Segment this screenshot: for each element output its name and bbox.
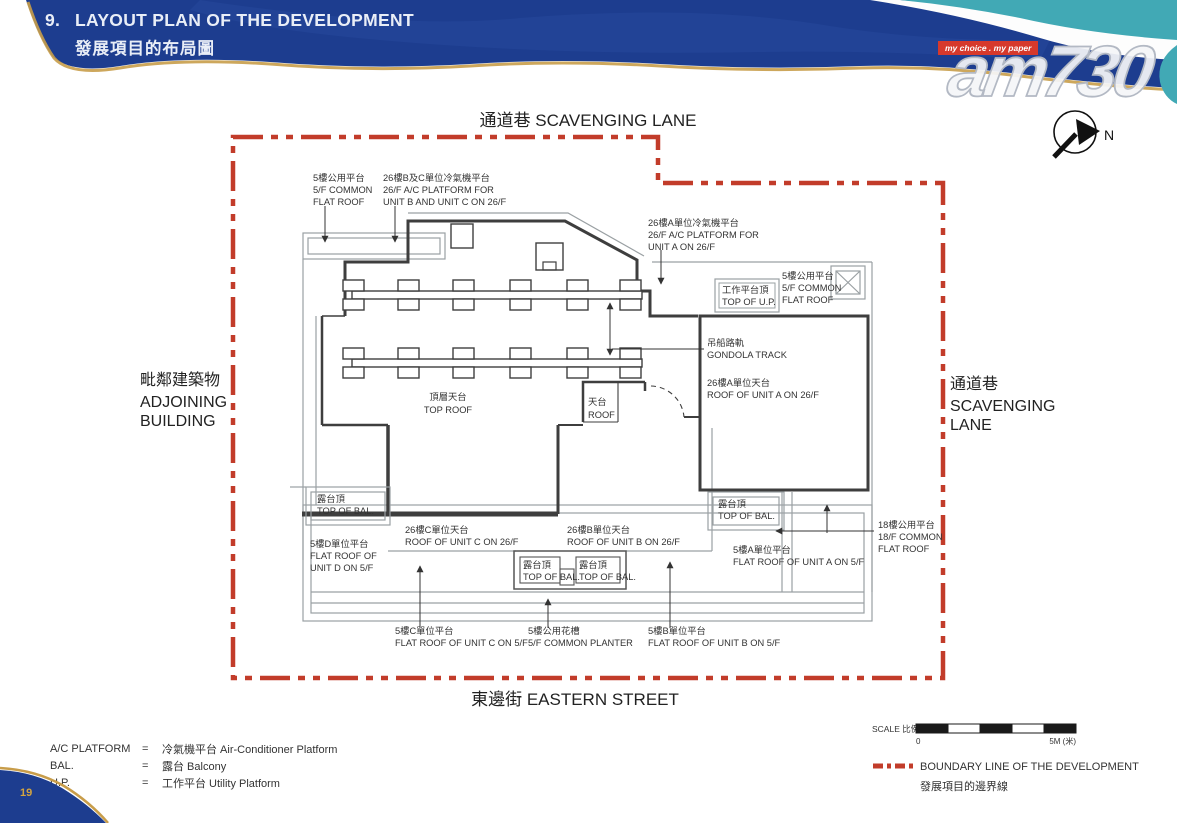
svg-text:FLAT ROOF OF UNIT B ON 5/F: FLAT ROOF OF UNIT B ON 5/F — [648, 638, 781, 648]
label-top-of-bal-right: 露台頂 TOP OF BAL. — [718, 498, 775, 521]
svg-text:5樓公用花槽: 5樓公用花槽 — [528, 625, 580, 636]
corner-navy-shape — [0, 770, 106, 823]
scale-bar — [916, 724, 1076, 733]
label-top-of-bal-bottom-1: 露台頂 TOP OF BAL. — [523, 559, 580, 582]
svg-text:ROOF OF UNIT B ON 26/F: ROOF OF UNIT B ON 26/F — [567, 537, 680, 547]
scavenging-lane-right-label: 通道巷 SCAVENGING LANE — [950, 375, 1056, 434]
gondola-track-rails — [343, 280, 642, 378]
label-ac-platform-unit-bc: 26樓B及C單位冷氣機平台 26/F A/C PLATFORM FOR UNIT… — [383, 172, 506, 207]
label-5f-common-flat-roof-right: 5樓公用平台 5/F COMMON FLAT ROOF — [782, 270, 841, 305]
svg-text:5/F COMMON PLANTER: 5/F COMMON PLANTER — [528, 638, 633, 648]
svg-text:26/F A/C PLATFORM FOR: 26/F A/C PLATFORM FOR — [648, 230, 759, 240]
svg-text:UNIT D ON 5/F: UNIT D ON 5/F — [310, 563, 374, 573]
street-label-top: 通道巷 SCAVENGING LANE — [480, 111, 697, 130]
svg-text:5/F COMMON: 5/F COMMON — [313, 185, 372, 195]
label-roof-small: 天台 ROOF — [588, 396, 615, 420]
svg-text:UNIT B AND UNIT C ON 26/F: UNIT B AND UNIT C ON 26/F — [383, 197, 506, 207]
svg-text:TOP OF BAL.: TOP OF BAL. — [718, 511, 775, 521]
svg-text:TOP OF BAL.: TOP OF BAL. — [317, 506, 374, 516]
svg-text:FLAT ROOF: FLAT ROOF — [782, 295, 834, 305]
svg-text:26樓B及C單位冷氣機平台: 26樓B及C單位冷氣機平台 — [383, 172, 490, 183]
label-roof-of-unit-b: 26樓B單位天台 ROOF OF UNIT B ON 26/F — [567, 524, 680, 547]
svg-text:ROOF: ROOF — [588, 410, 615, 420]
svg-text:5樓C單位平台: 5樓C單位平台 — [395, 625, 453, 636]
svg-text:26樓A單位天台: 26樓A單位天台 — [707, 377, 770, 388]
svg-text:SCAVENGING: SCAVENGING — [950, 398, 1056, 415]
svg-text:5樓公用平台: 5樓公用平台 — [313, 172, 365, 183]
layout-plan: 通道巷 SCAVENGING LANE 東邊街 EASTERN STREET 毗… — [0, 0, 1177, 823]
svg-text:TOP OF BAL.: TOP OF BAL. — [523, 572, 580, 582]
label-top-of-bal-bottom-2: 露台頂 TOP OF BAL. — [579, 559, 636, 582]
label-roof-of-unit-c: 26樓C單位天台 ROOF OF UNIT C ON 26/F — [405, 524, 519, 547]
label-flat-roof-unit-c: 5樓C單位平台 FLAT ROOF OF UNIT C ON 5/F — [395, 625, 528, 648]
svg-text:18樓公用平台: 18樓公用平台 — [878, 519, 935, 530]
svg-text:毗鄰建築物: 毗鄰建築物 — [140, 371, 220, 389]
svg-text:露台頂: 露台頂 — [718, 498, 747, 509]
label-roof-of-unit-a: 26樓A單位天台 ROOF OF UNIT A ON 26/F — [707, 377, 819, 400]
svg-text:26樓B單位天台: 26樓B單位天台 — [567, 524, 630, 535]
svg-text:ADJOINING: ADJOINING — [140, 394, 227, 411]
svg-text:5樓公用平台: 5樓公用平台 — [782, 270, 834, 281]
title-chinese: 發展項目的布局圖 — [75, 35, 414, 59]
svg-text:TOP OF U.P.: TOP OF U.P. — [722, 297, 776, 307]
svg-text:26/F A/C PLATFORM FOR: 26/F A/C PLATFORM FOR — [383, 185, 494, 195]
boundary-legend-en: BOUNDARY LINE OF THE DEVELOPMENT — [920, 761, 1139, 773]
svg-text:吊船路軌: 吊船路軌 — [707, 337, 745, 348]
svg-text:FLAT ROOF: FLAT ROOF — [313, 197, 365, 207]
label-flat-roof-unit-a: 5樓A單位平台 FLAT ROOF OF UNIT A ON 5/F — [733, 544, 865, 567]
scale-and-boundary-legend: SCALE 比例 : 0 5M (米) BOUNDARY LINE OF THE… — [870, 718, 1170, 808]
svg-text:FLAT ROOF: FLAT ROOF — [878, 544, 930, 554]
scale-max: 5M (米) — [1049, 736, 1076, 746]
svg-text:TOP OF BAL.: TOP OF BAL. — [579, 572, 636, 582]
svg-text:頂層天台: 頂層天台 — [429, 391, 466, 402]
page-number: 19 — [20, 787, 32, 799]
label-top-roof: 頂層天台 TOP ROOF — [424, 391, 473, 415]
logo-brand-text: am730 — [943, 31, 1161, 111]
label-gondola-track: 吊船路軌 GONDOLA TRACK — [707, 337, 788, 360]
svg-text:18/F COMMON: 18/F COMMON — [878, 532, 943, 542]
svg-text:FLAT ROOF OF UNIT A ON 5/F: FLAT ROOF OF UNIT A ON 5/F — [733, 557, 865, 567]
svg-text:BUILDING: BUILDING — [140, 413, 216, 430]
am730-logo: am730 — [928, 24, 1168, 120]
svg-text:26樓A單位冷氣機平台: 26樓A單位冷氣機平台 — [648, 217, 739, 228]
adjoining-building-label: 毗鄰建築物 ADJOINING BUILDING — [140, 371, 227, 430]
label-top-of-up: 工作平台頂 TOP OF U.P. — [715, 279, 779, 312]
svg-text:ROOF OF UNIT C ON 26/F: ROOF OF UNIT C ON 26/F — [405, 537, 519, 547]
svg-text:LANE: LANE — [950, 417, 992, 434]
svg-text:5樓B單位平台: 5樓B單位平台 — [648, 625, 706, 636]
svg-text:5/F COMMON: 5/F COMMON — [782, 283, 841, 293]
svg-text:露台頂: 露台頂 — [317, 493, 346, 504]
svg-text:26樓C單位天台: 26樓C單位天台 — [405, 524, 469, 535]
svg-text:ROOF OF UNIT A ON 26/F: ROOF OF UNIT A ON 26/F — [707, 390, 819, 400]
svg-text:通道巷: 通道巷 — [950, 375, 998, 393]
page-title: 9. LAYOUT PLAN OF THE DEVELOPMENT 發展項目的布… — [45, 10, 414, 59]
svg-text:5樓D單位平台: 5樓D單位平台 — [310, 538, 368, 549]
section-number: 9. — [45, 10, 75, 31]
svg-text:GONDOLA TRACK: GONDOLA TRACK — [707, 350, 788, 360]
svg-text:露台頂: 露台頂 — [579, 559, 608, 570]
scale-zero: 0 — [916, 737, 921, 746]
svg-text:TOP ROOF: TOP ROOF — [424, 405, 473, 415]
svg-text:工作平台頂: 工作平台頂 — [722, 284, 769, 295]
svg-text:天台: 天台 — [588, 396, 607, 407]
svg-text:5樓A單位平台: 5樓A單位平台 — [733, 544, 791, 555]
label-5f-common-planter: 5樓公用花槽 5/F COMMON PLANTER — [528, 625, 633, 648]
legend-row-ac-platform: A/C PLATFORM = 冷氣機平台 Air-Conditioner Pla… — [50, 740, 337, 757]
title-english: LAYOUT PLAN OF THE DEVELOPMENT — [75, 10, 414, 31]
street-label-bottom: 東邊街 EASTERN STREET — [471, 690, 679, 709]
svg-text:FLAT ROOF OF UNIT C ON 5/F: FLAT ROOF OF UNIT C ON 5/F — [395, 638, 528, 648]
label-5f-common-flat-roof-left: 5樓公用平台 5/F COMMON FLAT ROOF — [313, 172, 372, 207]
svg-text:UNIT A ON 26/F: UNIT A ON 26/F — [648, 242, 715, 252]
svg-text:FLAT ROOF OF: FLAT ROOF OF — [310, 551, 377, 561]
svg-text:露台頂: 露台頂 — [523, 559, 552, 570]
development-boundary-line — [233, 137, 943, 678]
label-18f-common-flat-roof: 18樓公用平台 18/F COMMON FLAT ROOF — [878, 519, 943, 554]
label-flat-roof-unit-b: 5樓B單位平台 FLAT ROOF OF UNIT B ON 5/F — [648, 625, 781, 648]
balcony-top-boxes-bottom — [514, 551, 626, 589]
label-flat-roof-unit-d: 5樓D單位平台 FLAT ROOF OF UNIT D ON 5/F — [310, 538, 377, 573]
brochure-page: 9. LAYOUT PLAN OF THE DEVELOPMENT 發展項目的布… — [0, 0, 1177, 823]
north-label: N — [1104, 127, 1114, 143]
label-ac-platform-unit-a: 26樓A單位冷氣機平台 26/F A/C PLATFORM FOR UNIT A… — [648, 217, 759, 252]
boundary-legend-zh: 發展項目的邊界線 — [920, 779, 1008, 793]
